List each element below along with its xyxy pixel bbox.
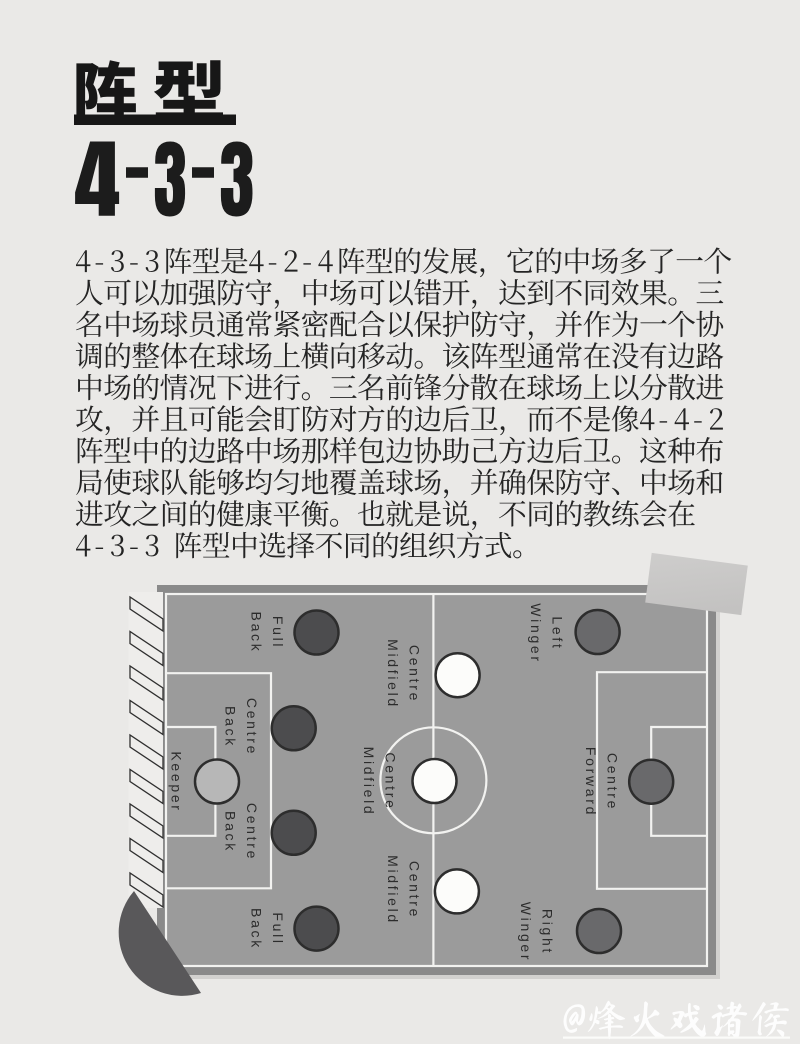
svg-text:Centre: Centre bbox=[406, 861, 422, 919]
svg-text:Midfield: Midfield bbox=[385, 639, 401, 709]
svg-text:Forward: Forward bbox=[583, 747, 599, 817]
svg-text:Left: Left bbox=[550, 616, 566, 650]
svg-text:Centre: Centre bbox=[605, 753, 621, 811]
svg-text:Right: Right bbox=[539, 909, 555, 955]
svg-text:Full: Full bbox=[270, 616, 286, 649]
svg-text:Centre: Centre bbox=[244, 803, 260, 861]
svg-text:Keeper: Keeper bbox=[168, 751, 184, 812]
svg-text:Full: Full bbox=[270, 912, 286, 945]
svg-text:Winger: Winger bbox=[528, 603, 544, 664]
svg-text:Centre: Centre bbox=[383, 752, 399, 810]
svg-text:Back: Back bbox=[248, 612, 264, 654]
svg-text:Centre: Centre bbox=[406, 645, 422, 703]
svg-text:Midfield: Midfield bbox=[385, 855, 401, 925]
svg-text:Winger: Winger bbox=[518, 902, 534, 963]
svg-text:Back: Back bbox=[223, 706, 239, 748]
svg-text:Midfield: Midfield bbox=[361, 747, 377, 817]
svg-text:Centre: Centre bbox=[244, 698, 260, 756]
svg-text:Back: Back bbox=[248, 908, 264, 950]
svg-text:Back: Back bbox=[223, 811, 239, 853]
